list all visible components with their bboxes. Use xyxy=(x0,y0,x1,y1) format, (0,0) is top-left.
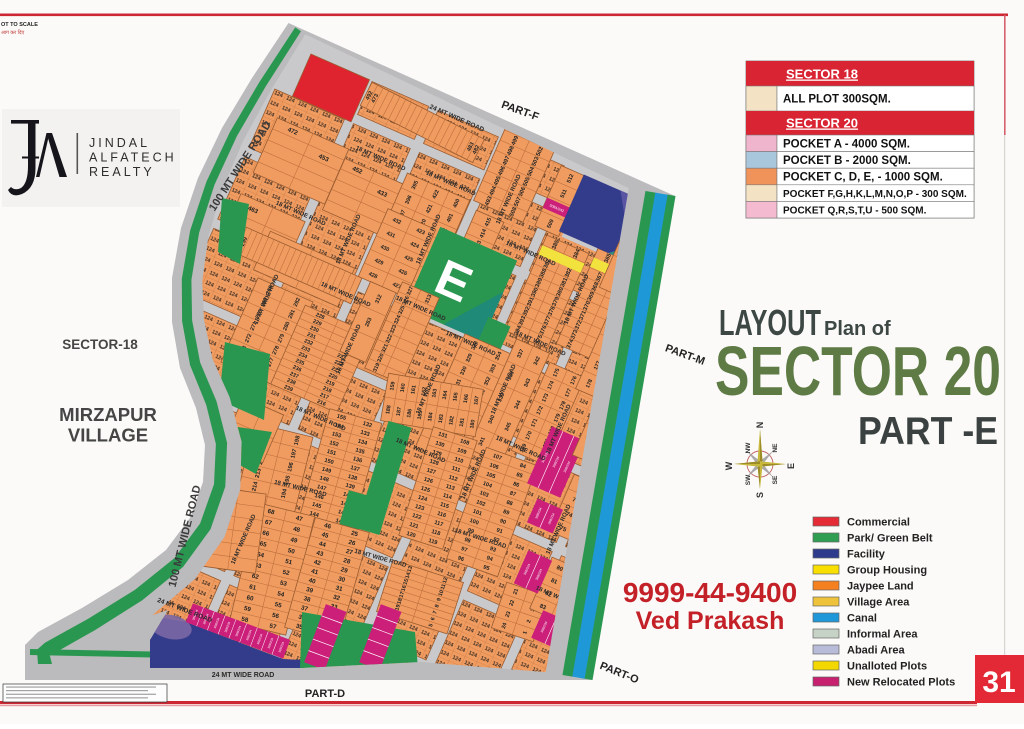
svg-text:MIRZAPUR: MIRZAPUR xyxy=(59,404,157,425)
svg-text:Group Housing: Group Housing xyxy=(847,565,927,577)
svg-text:SECTOR-18: SECTOR-18 xyxy=(62,337,138,352)
svg-text:SECTOR 20: SECTOR 20 xyxy=(715,332,1001,410)
svg-text:SECTOR 18: SECTOR 18 xyxy=(786,67,858,82)
svg-text:Ved Prakash: Ved Prakash xyxy=(636,607,785,635)
svg-text:9999-44-9400: 9999-44-9400 xyxy=(623,577,797,608)
svg-text:JINDAL: JINDAL xyxy=(89,136,150,150)
svg-text:SW: SW xyxy=(745,474,752,485)
svg-text:POCKET B - 2000 SQM.: POCKET B - 2000 SQM. xyxy=(783,155,911,167)
svg-text:Park/ Green Belt: Park/ Green Belt xyxy=(847,533,933,545)
svg-text:ALL PLOT 300SQM.: ALL PLOT 300SQM. xyxy=(783,94,891,106)
svg-text:Facility: Facility xyxy=(847,549,886,561)
svg-text:New Relocated Plots: New Relocated Plots xyxy=(847,677,955,689)
svg-text:NW: NW xyxy=(745,442,752,454)
svg-text:Unalloted Plots: Unalloted Plots xyxy=(847,661,927,673)
svg-text:W: W xyxy=(724,461,734,470)
svg-text:Informal Area: Informal Area xyxy=(847,629,918,641)
svg-text:POCKET Q,R,S,T,U - 500 SQM.: POCKET Q,R,S,T,U - 500 SQM. xyxy=(783,206,927,217)
svg-text:VILLAGE: VILLAGE xyxy=(68,425,148,446)
svg-text:Village Area: Village Area xyxy=(847,597,910,609)
svg-text:REALTY: REALTY xyxy=(89,165,155,179)
svg-text:N: N xyxy=(755,422,765,429)
svg-text:आग कर दिए: आग कर दिए xyxy=(1,29,25,36)
svg-text:PART -E: PART -E xyxy=(858,410,998,453)
svg-text:31: 31 xyxy=(982,666,1015,699)
svg-text:POCKET A - 4000 SQM.: POCKET A - 4000 SQM. xyxy=(783,138,910,150)
svg-text:ALFATECH: ALFATECH xyxy=(89,151,177,165)
svg-text:Jaypee Land: Jaypee Land xyxy=(847,581,914,593)
svg-text:S: S xyxy=(755,492,765,498)
svg-text:Abadi Area: Abadi Area xyxy=(847,645,906,657)
svg-text:PART-D: PART-D xyxy=(305,688,345,700)
svg-text:E: E xyxy=(786,463,796,469)
svg-text:NE: NE xyxy=(772,443,779,453)
svg-text:SE: SE xyxy=(772,475,779,484)
svg-text:Canal: Canal xyxy=(847,613,877,625)
svg-text:POCKET F,G,H,K,L,M,N,O,P -: POCKET F,G,H,K,L,M,N,O,P - 300 SQM. xyxy=(783,189,967,200)
svg-text:Commercial: Commercial xyxy=(847,517,910,529)
svg-text:SECTOR 20: SECTOR 20 xyxy=(786,116,858,131)
svg-text:OT TO SCALE: OT TO SCALE xyxy=(1,22,38,28)
svg-text:POCKET C, D, E, - 1000 SQM.: POCKET C, D, E, - 1000 SQM. xyxy=(783,172,943,184)
svg-text:24 MT WIDE ROAD: 24 MT WIDE ROAD xyxy=(212,672,275,679)
